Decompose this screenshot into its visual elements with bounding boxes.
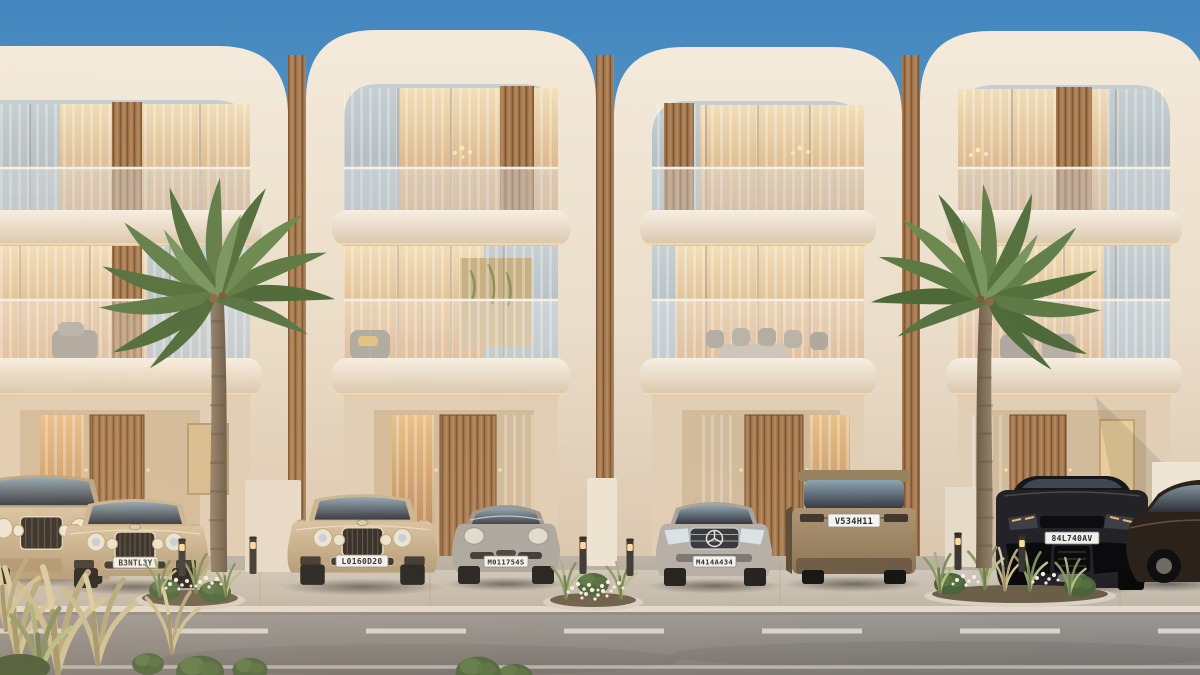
architectural-render: B3NTL3Y L0160D20 M011754S xyxy=(0,0,1200,675)
scene-render: B3NTL3Y L0160D20 M011754S xyxy=(0,0,1200,675)
sunlight-overlay xyxy=(0,0,1200,675)
